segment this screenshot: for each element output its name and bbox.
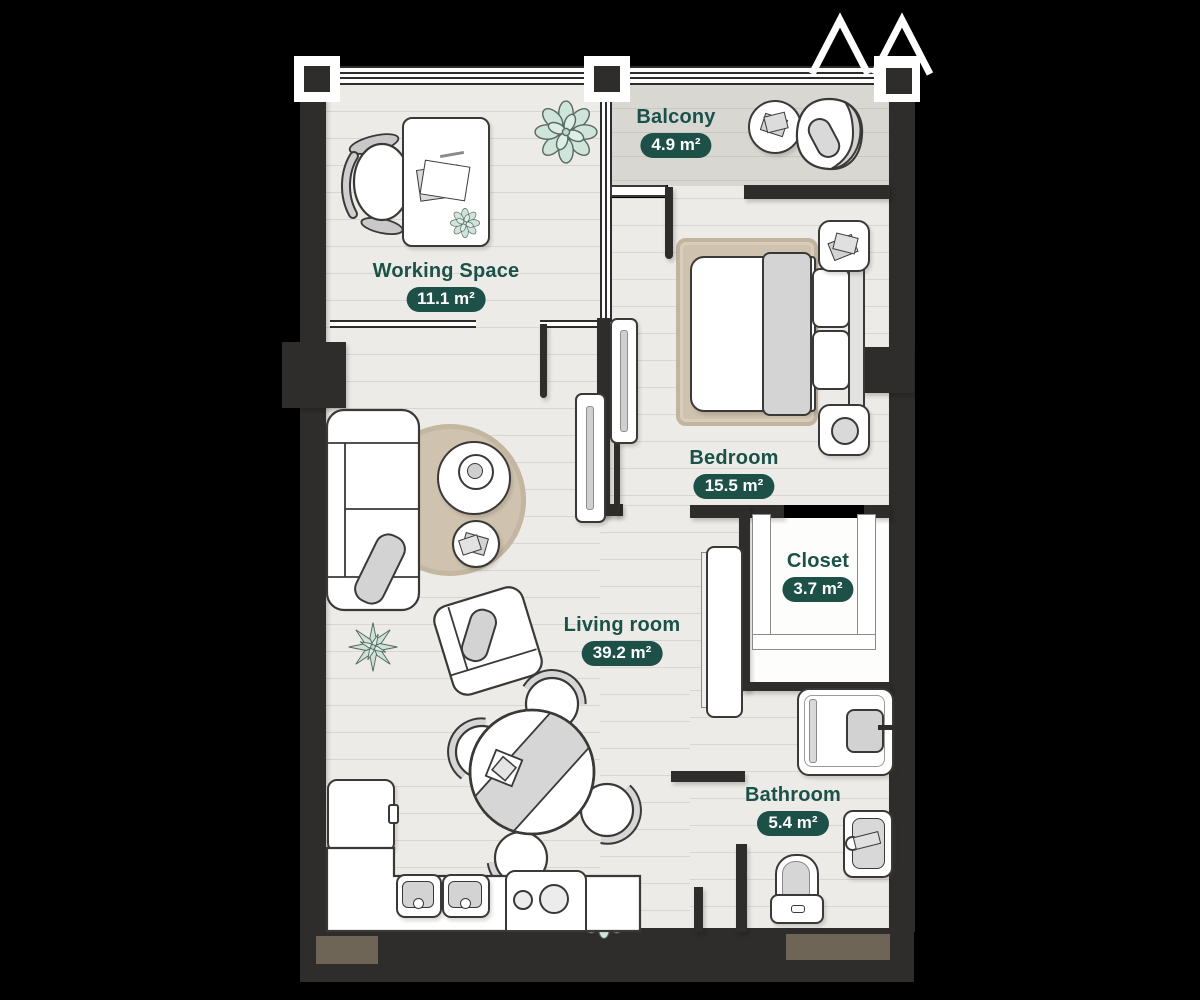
balcony-door-threshold xyxy=(610,185,667,197)
toilet-tank xyxy=(770,894,824,924)
toilet-seat xyxy=(782,861,810,897)
room-label-bedroom: Bedroom 15.5 m² xyxy=(689,447,778,499)
door-mat-right xyxy=(786,934,890,960)
fridge xyxy=(327,779,395,853)
room-area-badge: 3.7 m² xyxy=(782,577,853,602)
bedside-lamp xyxy=(831,417,859,445)
tv-console xyxy=(706,546,743,718)
flush-button xyxy=(791,905,805,913)
side-table xyxy=(452,520,500,568)
shower-head xyxy=(846,709,884,753)
room-label-closet: Closet 3.7 m² xyxy=(782,550,853,602)
door-mat-left xyxy=(316,936,378,964)
wall-balcony-bedroom xyxy=(744,185,890,199)
plant-large xyxy=(530,94,602,170)
wall-right xyxy=(889,74,915,932)
floor-plant-star xyxy=(344,616,402,678)
door-handle xyxy=(586,406,594,510)
desk-plant xyxy=(448,206,482,240)
room-name: Working Space xyxy=(373,260,520,283)
wall-left-pillar xyxy=(282,342,346,408)
pillow xyxy=(812,268,850,328)
shower-arm xyxy=(878,725,894,730)
sliding-door-rail xyxy=(614,442,620,516)
coffee-table xyxy=(437,441,511,515)
coffee-table-bowl xyxy=(467,463,483,479)
shower xyxy=(797,688,894,776)
room-name: Bedroom xyxy=(689,447,778,470)
balcony-lounge-chair xyxy=(793,96,867,174)
sliding-door-panel xyxy=(610,318,638,444)
shower-glass xyxy=(809,699,817,763)
nightstand xyxy=(818,220,870,272)
wardrobe-base xyxy=(752,634,876,650)
kitchen-sink xyxy=(396,874,442,918)
kitchen-sink xyxy=(442,874,490,918)
column-core xyxy=(594,66,620,92)
stove xyxy=(505,870,587,932)
wardrobe-arm xyxy=(752,514,771,642)
fridge-handle xyxy=(388,804,399,824)
room-area-badge: 11.1 m² xyxy=(406,287,486,312)
glass-partition-b xyxy=(540,320,602,328)
glass-partition-a xyxy=(330,320,476,328)
room-label-balcony: Balcony 4.9 m² xyxy=(636,106,715,158)
wall-hall-stub xyxy=(671,771,745,782)
column-top-left xyxy=(294,56,340,102)
wall-balcony-door-leaf xyxy=(665,187,673,259)
floor-plan: Balcony 4.9 m² Working Space 11.1 m² Bed… xyxy=(0,0,1200,1000)
room-area-badge: 4.9 m² xyxy=(640,133,711,158)
headboard xyxy=(848,260,865,412)
wardrobe-arm xyxy=(857,514,876,642)
wall-right-pillar xyxy=(862,347,914,393)
room-area-badge: 5.4 m² xyxy=(757,811,828,836)
room-name: Balcony xyxy=(636,106,715,129)
desk-pen xyxy=(440,151,464,158)
sink-drain xyxy=(413,898,424,909)
room-label-bathroom: Bathroom 5.4 m² xyxy=(745,784,841,836)
desk-paper-front xyxy=(420,160,471,202)
stove-burner xyxy=(513,890,533,910)
door-handle xyxy=(620,330,628,432)
room-name: Closet xyxy=(782,550,853,573)
wall-bath-left xyxy=(736,844,747,932)
room-label-working-space: Working Space 11.1 m² xyxy=(373,260,520,312)
stove-burner xyxy=(539,884,569,914)
zigzag-marker-icon xyxy=(806,16,936,78)
room-area-badge: 15.5 m² xyxy=(694,474,775,499)
column-core xyxy=(304,66,330,92)
bathroom-sink xyxy=(843,810,893,878)
sliding-door-panel xyxy=(575,393,606,523)
blanket xyxy=(762,252,812,416)
sofa xyxy=(323,405,423,615)
coffee-table-tray xyxy=(458,454,494,490)
wall-bath-stub xyxy=(694,887,703,932)
wall-partition-drop xyxy=(540,324,547,398)
pillow xyxy=(812,330,850,390)
room-name: Bathroom xyxy=(745,784,841,807)
room-label-living-room: Living room 39.2 m² xyxy=(564,614,681,666)
window-band-left xyxy=(321,66,589,85)
nightstand xyxy=(818,404,870,456)
floor-doorway-patch xyxy=(668,185,744,199)
room-area-badge: 39.2 m² xyxy=(582,641,663,666)
room-name: Living room xyxy=(564,614,681,637)
sink-drain xyxy=(460,898,471,909)
